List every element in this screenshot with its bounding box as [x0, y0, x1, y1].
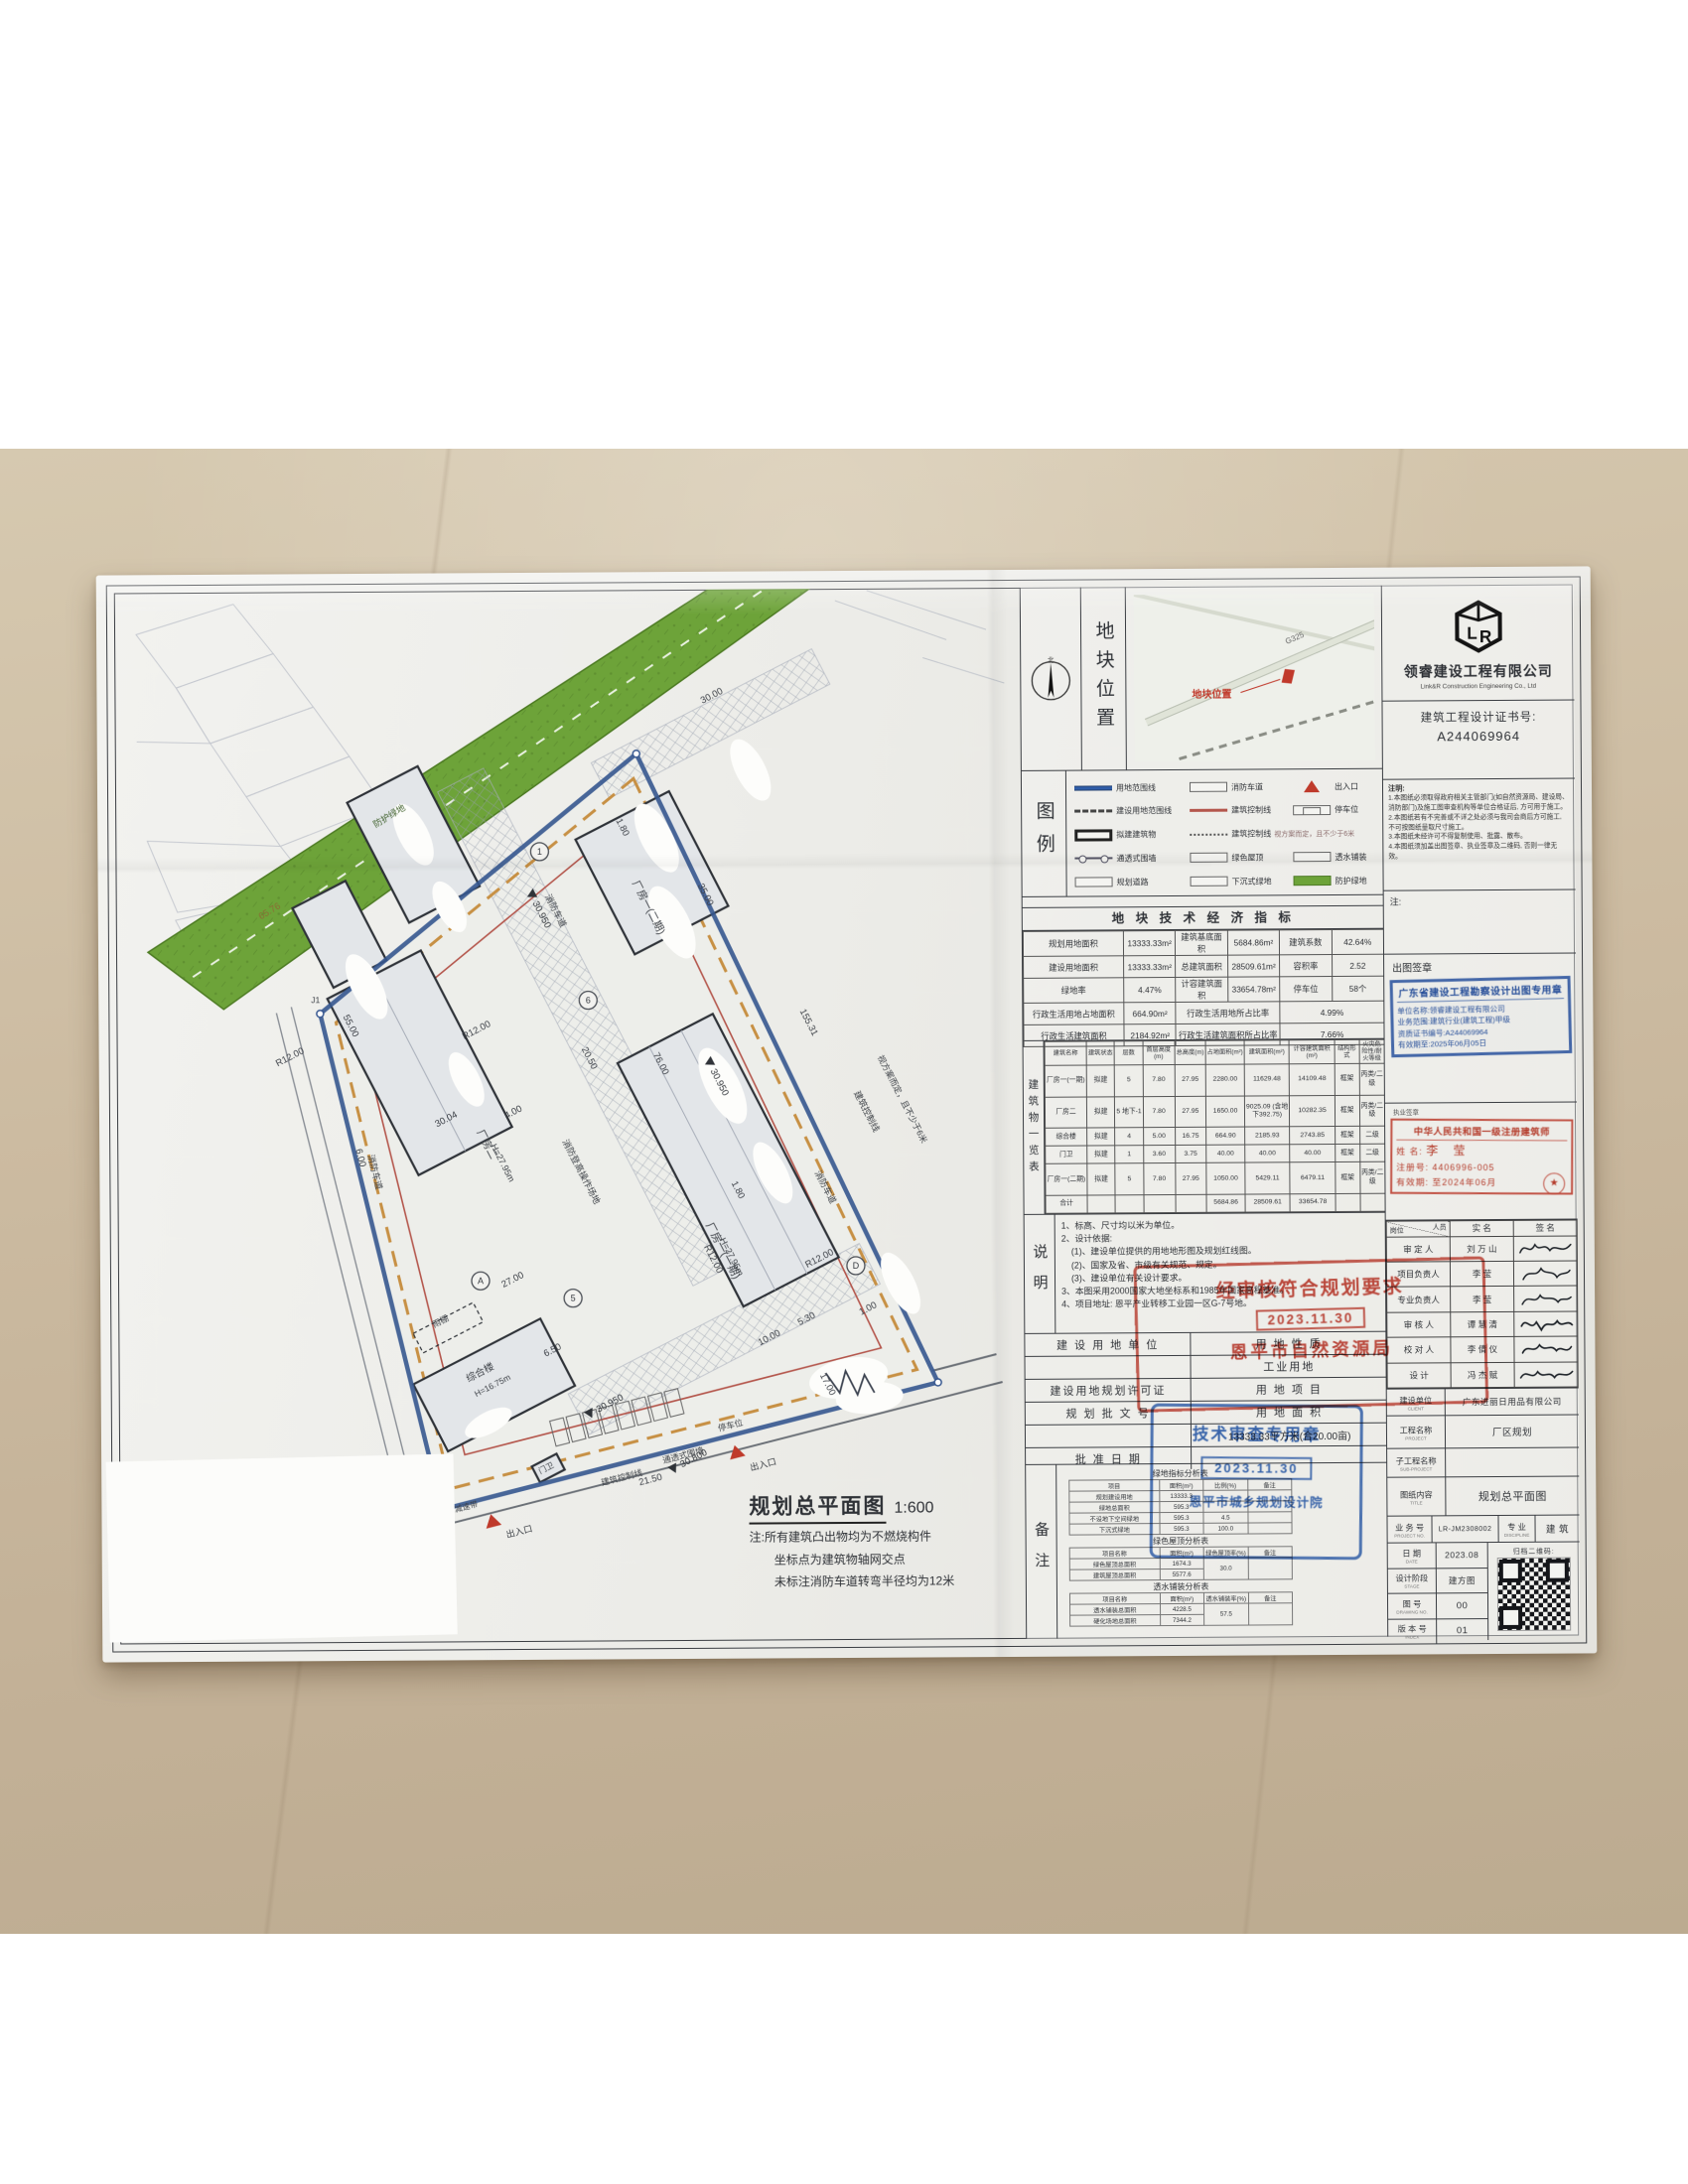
sub-project-value [1446, 1448, 1579, 1477]
table-cell: 7.80 [1143, 1065, 1175, 1097]
axis-bubble-label: 5 [571, 1294, 576, 1303]
divider [1382, 700, 1574, 702]
architect-stamp: 中华人民共和国一级注册建筑师 姓 名: 李 莹 注册号: 4406996-005… [1390, 1119, 1573, 1195]
table-row: 透水铺装总面积4228.557.5 [1070, 1603, 1293, 1615]
legend-text: 绿色屋顶 [1231, 852, 1263, 863]
table-cell: 绿色屋顶总面积 [1069, 1559, 1160, 1570]
label-j1: J1 [311, 995, 320, 1005]
drawing-no-value: 00 [1437, 1593, 1487, 1618]
legend-text: 透水铺装 [1335, 852, 1366, 863]
axis-bubble-label: 1 [537, 847, 542, 857]
table-header-cell: 总高度(m) [1175, 1040, 1206, 1065]
table-cell: 42.64% [1332, 929, 1384, 954]
table-cell [1248, 1603, 1293, 1625]
table-cell: 拟建 [1087, 1163, 1116, 1195]
legend-swatch-greenroof [1190, 853, 1227, 863]
architect-name: 李 莹 [1426, 1144, 1471, 1158]
legend-text: 规划道路 [1117, 877, 1149, 887]
legend-swatch-sunken-green [1191, 877, 1228, 887]
instruction-item: 2.本图纸若有不完善或不详之处必须与我司会商后方可施工, 不可按图纸量取尺寸施工… [1388, 812, 1570, 833]
table-cell: 拟建 [1086, 1097, 1115, 1129]
sheet-title-label: 图纸内容 [1400, 1488, 1433, 1500]
table-cell: 16.75 [1175, 1127, 1206, 1145]
table-cell: 门卫 [1046, 1146, 1087, 1163]
table-cell: 28509.61 [1245, 1194, 1291, 1212]
signature-scribble [1514, 1311, 1578, 1337]
table-header-cell: 备注 [1248, 1592, 1293, 1603]
issue-seal-label: 出图签章 [1384, 954, 1576, 977]
qr-code [1498, 1559, 1570, 1630]
table-cell: 4228.5 [1160, 1603, 1204, 1614]
legend-swatch-control-dotted [1190, 833, 1227, 835]
table-cell: 建设用地面积 [1024, 956, 1124, 979]
stage-label-en: STAGE [1404, 1584, 1419, 1589]
instruction-item: 4.本图纸须加盖出图签章、执业签章及二维码, 否则一律无效。 [1388, 842, 1570, 863]
table-cell: 厂房二 [1045, 1097, 1086, 1129]
legend-text: 拟建建筑物 [1116, 829, 1156, 840]
table-cell [1336, 1193, 1360, 1211]
table-cell: 二级 [1359, 1144, 1384, 1161]
legend-text: 建筑控制线 [1231, 828, 1271, 839]
plan-title: 规划总平面图 [749, 1490, 886, 1525]
table-row: 规划用地面积13333.33m²建筑基底面积5684.86m²建筑系数42.64… [1023, 929, 1383, 956]
table-cell: 丙类/二级 [1359, 1064, 1384, 1096]
stamp-date: 2023.11.30 [1200, 1456, 1313, 1480]
table-row: 厂房一(一期)拟建57.8027.952280.0011629.4814109.… [1045, 1064, 1384, 1097]
drawing-no-label-en: DRAWING NO. [1396, 1609, 1428, 1614]
legend-text: 出入口 [1335, 780, 1358, 791]
buildings-section: 建筑物一览表 建筑名称建筑状态层数首层高度(m)总高度(m)占地面积(m²)建筑… [1024, 1039, 1386, 1215]
stamp-line: 注册号: [1396, 1162, 1429, 1172]
table-header-cell: 建筑面积(m²) [1244, 1040, 1290, 1065]
company-logo-icon: L R [1451, 599, 1504, 654]
table-cell: 行政生活用地所占比率 [1176, 1002, 1280, 1024]
architect-seal-label: 执业签章 [1385, 1103, 1577, 1118]
signature-scribble [1513, 1261, 1577, 1287]
legend-swatch-fence [1074, 858, 1112, 860]
legend-text: 停车位 [1335, 804, 1358, 815]
project-label-en: PROJECT [1405, 1435, 1426, 1440]
table-cell: 7.80 [1143, 1096, 1175, 1128]
table-cell: 2743.85 [1290, 1127, 1336, 1145]
legend-swatch-firelane [1190, 782, 1227, 792]
architect-valid: 至2024年06月 [1432, 1177, 1496, 1187]
table-header-cell: 计容建筑面积(m²) [1289, 1039, 1335, 1064]
table-cell: 框架 [1335, 1064, 1359, 1096]
label-control-line: 建筑控制线 [852, 1089, 882, 1134]
table-header-cell: 火灾危险性/耐火等级 [1359, 1039, 1384, 1064]
map-highway-label: G325 [1284, 630, 1306, 646]
table-cell: 5 [1115, 1065, 1144, 1097]
index-label: 版 本 号 [1398, 1623, 1427, 1635]
axis-bubble-label: 6 [586, 996, 591, 1006]
table-cell [1115, 1194, 1143, 1212]
discipline-value: 建 筑 [1535, 1515, 1579, 1541]
date-value: 2023.08 [1437, 1543, 1487, 1568]
table-cell: 框架 [1335, 1145, 1359, 1162]
table-row: 绿地率4.47%计容建筑面积33654.78m²停车位58个 [1024, 976, 1384, 1003]
table-cell: 33654.78 [1290, 1193, 1336, 1211]
notes-side-label: 说明 [1025, 1215, 1056, 1333]
table-cell: 27.95 [1175, 1065, 1206, 1097]
project-value: 厂区规划 [1446, 1416, 1579, 1448]
sheet-title-value: 规划总平面图 [1446, 1477, 1579, 1516]
signature-scribble [1514, 1286, 1578, 1311]
sig-header: 签 名 [1513, 1220, 1577, 1236]
legend-text: 建筑控制线 [1231, 805, 1271, 816]
table-header-cell: 透水铺装率(%) [1204, 1592, 1249, 1603]
architect-reg-no: 4406996-005 [1432, 1162, 1494, 1172]
photo-of-site-plan: 1 6 5 A D 30.950 30.950 30.950 30.800 厂房… [0, 0, 1688, 2184]
table-cell: 10282.35 [1290, 1095, 1336, 1127]
review-stamp-red: 经审核符合规划要求 2023.11.30 恩平市自然资源局 [1133, 1256, 1488, 1413]
architect-seal-block: 执业签章 中华人民共和国一级注册建筑师 姓 名: 李 莹 注册号: 440699… [1385, 1103, 1578, 1221]
tech-review-stamp-blue: 技术审查专用章 2023.11.30 恩平市城乡规划设计院 [1150, 1404, 1363, 1561]
drawing-no-label: 图 号 [1403, 1597, 1422, 1609]
table-cell: 13333.33m² [1123, 930, 1176, 955]
table-cell: 58个 [1332, 976, 1384, 1001]
table-cell: 总建筑面积 [1176, 955, 1228, 977]
company-block: L R 领睿建设工程有限公司 Link&R Construction Engin… [1382, 585, 1575, 780]
table-cell: 5429.11 [1245, 1162, 1291, 1194]
table-row: 厂房一(二期)拟建57.8027.951050.005429.116479.11… [1046, 1162, 1385, 1195]
table-cell: 建筑系数 [1280, 930, 1333, 955]
table-cell: 5 地下-1 [1115, 1096, 1144, 1128]
legend-label: 图例 [1022, 771, 1067, 896]
legend-text: 用地范围线 [1116, 782, 1156, 793]
table-cell: 1050.00 [1206, 1162, 1245, 1194]
company-name-en: Link&R Construction Engineering Co., Ltd [1382, 683, 1574, 691]
table-cell: 拟建 [1087, 1146, 1115, 1163]
table-cell: 厂房一(二期) [1046, 1163, 1087, 1195]
instructions-block: 注明: 1.本图纸必须取得政府相关主管部门(如自然资源局、建设局、消防部门)及施… [1383, 779, 1576, 891]
map-plot-label: 地块位置 [1192, 686, 1231, 701]
table-row: 合计5684.8628509.6133654.78 [1046, 1193, 1385, 1213]
table-header-cell: 结构形式 [1335, 1039, 1359, 1064]
location-mini-map: G325 地块位置 [1134, 594, 1375, 761]
table-cell: 664.90m² [1124, 1002, 1177, 1024]
table-cell: 40.00 [1245, 1145, 1291, 1162]
table-cell: 4 [1115, 1128, 1143, 1146]
index-label-en: INDEX [1405, 1635, 1419, 1640]
table-cell: 33654.78m² [1227, 977, 1280, 1002]
legend-text: 通透式围墙 [1116, 853, 1156, 864]
table-cell: 行政生活用地占地面积 [1024, 1003, 1124, 1025]
indicators-table: 规划用地面积13333.33m²建筑基底面积5684.86m²建筑系数42.64… [1023, 929, 1385, 1047]
table-cell: 13333.33m² [1124, 955, 1177, 977]
white-redaction-patch [106, 1453, 458, 1642]
discipline-label: 专 业 [1507, 1520, 1526, 1532]
table-cell: 4.99% [1280, 1001, 1384, 1024]
table-cell: 28509.61m² [1227, 955, 1280, 977]
table-cell: 透水铺装总面积 [1070, 1604, 1161, 1616]
buildings-table: 建筑名称建筑状态层数首层高度(m)总高度(m)占地面积(m²)建筑面积(m²)计… [1045, 1039, 1386, 1214]
legend-swatch-constr-line [1074, 810, 1112, 813]
svg-text:R: R [1478, 627, 1490, 646]
table-cell: 11629.48 [1244, 1064, 1290, 1096]
qr-label: 归档二维码: [1488, 1545, 1580, 1556]
signature-scribble [1513, 1236, 1577, 1262]
permeable-analysis-table: 项目名称面积(m²)透水铺装率(%)备注透水铺装总面积4228.557.5硬化场… [1069, 1591, 1293, 1626]
table-cell: 9025.09 (含地下392.75) [1244, 1096, 1290, 1128]
table-cell: 1 [1115, 1146, 1143, 1163]
title-panel: L R 领睿建设工程有限公司 Link&R Construction Engin… [1381, 585, 1580, 1637]
table-cell: 5577.6 [1160, 1569, 1204, 1579]
issue-seal-stamp: 广东省建设工程勘察设计出图专用章 单位名称:领睿建设工程有限公司 业务范围:建筑… [1389, 976, 1572, 1057]
project-label: 工程名称 [1400, 1424, 1433, 1435]
table-cell: 规划建设用地 [1069, 1491, 1160, 1503]
table-cell [1087, 1195, 1115, 1213]
legend-swatch-permeable [1293, 852, 1331, 862]
plan-note: 注:所有建筑凸出物均为不燃烧构件 [750, 1527, 1028, 1547]
table-cell: 建筑屋顶总面积 [1069, 1570, 1160, 1581]
table-cell: 2185.93 [1244, 1127, 1290, 1145]
svg-text:L: L [1467, 624, 1477, 643]
table-header-cell: 项目名称 [1069, 1593, 1160, 1605]
table-row: 厂房二拟建5 地下-17.8027.951650.009025.09 (含地下3… [1045, 1095, 1384, 1128]
table-cell: 7.80 [1144, 1163, 1176, 1195]
company-name: 领睿建设工程有限公司 [1382, 661, 1574, 682]
table-row: 门卫拟建13.603.7540.0040.0040.00框架二级 [1046, 1144, 1385, 1163]
table-cell: 30.0 [1203, 1558, 1248, 1579]
sub-project-label: 子工程名称 [1396, 1454, 1437, 1466]
table-cell: 绿地总面积 [1069, 1502, 1160, 1514]
stamp-text: 经审核符合规划要求 [1137, 1269, 1483, 1304]
table-cell: 27.95 [1175, 1096, 1206, 1128]
plan-scale: 1:600 [894, 1499, 933, 1516]
project-no-value: LR-JM2308002 [1432, 1516, 1498, 1542]
paper-sheet: 1 6 5 A D 30.950 30.950 30.950 30.800 厂房… [96, 566, 1598, 1662]
drawing-title-block: 建设单位CLIENT 广东进丽日用品有限公司 工程名称PROJECT 厂区规划 … [1387, 1389, 1581, 1637]
label-entrance: 出入口 [504, 1523, 533, 1540]
buildings-side-label: 建筑物一览表 [1024, 1041, 1046, 1214]
note-box: 注: [1384, 890, 1576, 955]
table-cell [1360, 1193, 1385, 1211]
cert-label: 建筑工程设计证书号: [1383, 709, 1575, 726]
table-cell: 4.47% [1124, 977, 1177, 1002]
stamp-date: 2023.11.30 [1255, 1307, 1365, 1331]
project-no-label-en: PROJECT NO. [1394, 1533, 1425, 1538]
table-header-cell: 建筑状态 [1086, 1041, 1115, 1066]
stamp-org: 恩平市城乡规划设计院 [1153, 1491, 1359, 1512]
signature-scribble [1514, 1336, 1578, 1362]
table-cell: 1650.00 [1206, 1096, 1245, 1128]
table-header-cell: 首层高度(m) [1143, 1040, 1175, 1065]
table-header-cell: 项目名称 [1069, 1548, 1160, 1560]
table-cell: 57.5 [1204, 1603, 1249, 1625]
round-seal-icon: ★ [1543, 1172, 1565, 1194]
table-cell: 5.00 [1143, 1128, 1175, 1146]
table-cell: 厂房一(一期) [1045, 1065, 1086, 1097]
table-cell: 5 [1115, 1163, 1144, 1195]
table-cell: 计容建筑面积 [1176, 977, 1228, 1002]
table-row: 绿色屋顶总面积1674.330.0 [1069, 1558, 1292, 1570]
table-cell: 硬化场地总面积 [1070, 1615, 1161, 1627]
instruction-item: 1.本图纸必须取得政府相关主管部门(如自然资源局、建设局、消防部门)及施工图审查… [1388, 793, 1570, 814]
legend-swatch-boundary [1074, 785, 1112, 790]
table-cell: 5684.86 [1206, 1194, 1245, 1212]
stamp-line: 姓 名: [1396, 1147, 1423, 1157]
legend-swatch-entrance [1304, 780, 1320, 792]
diagonal-header: 岗位 人员 [1386, 1221, 1450, 1237]
table-cell: 2280.00 [1205, 1064, 1244, 1096]
table-cell: 绿地率 [1024, 978, 1124, 1004]
legend-swatch-control-line [1190, 809, 1227, 812]
plan-note: 未标注消防车道转弯半径均为12米 [750, 1571, 1028, 1591]
table-header-cell: 项目 [1069, 1480, 1160, 1492]
table-row: 综合楼拟建45.0016.75664.902185.932743.85框架二级 [1046, 1126, 1385, 1146]
index-value: 01 [1437, 1619, 1487, 1644]
table-cell [1144, 1194, 1176, 1212]
table-cell: 二级 [1359, 1126, 1384, 1144]
pos-label: 岗位 [1390, 1225, 1404, 1235]
legend-swatch-building [1074, 829, 1112, 841]
plot-location-label: 地块位置 [1081, 587, 1127, 769]
legend-text: 防护绿地 [1336, 875, 1367, 886]
table-cell: 规划用地面积 [1023, 931, 1123, 957]
table-cell: 14109.48 [1290, 1064, 1336, 1096]
table-cell: 7344.2 [1160, 1614, 1204, 1625]
signature-scribble [1514, 1362, 1578, 1388]
table-header-cell: 占地面积(m²) [1205, 1040, 1244, 1065]
legend-swatch-road [1075, 877, 1113, 887]
issue-seal-block: 出图签章 广东省建设工程勘察设计出图专用章 单位名称:领睿建设工程有限公司 业务… [1384, 954, 1577, 1104]
legend-text: 建设用地范围线 [1116, 805, 1172, 816]
map-plot-marker [1282, 669, 1295, 684]
map-railway [1179, 691, 1375, 760]
table-cell [1176, 1194, 1207, 1212]
map-road [1134, 594, 1375, 663]
client-label-en: CLIENT [1408, 1406, 1424, 1411]
table-cell: 综合楼 [1046, 1128, 1087, 1146]
table-cell: 拟建 [1086, 1065, 1115, 1097]
sub-project-label-en: SUB-PROJECT [1400, 1466, 1432, 1471]
name-header: 实 名 [1450, 1220, 1513, 1236]
sheet-title-label-en: TITLE [1410, 1500, 1423, 1505]
table-cell: 5684.86m² [1227, 930, 1280, 955]
legend-swatch-buffer-green [1294, 876, 1332, 886]
economic-indicators-section: 地 块 技 术 经 济 指 标 规划用地面积13333.33m²建筑基底面积56… [1023, 905, 1385, 1041]
plan-note: 坐标点为建筑物轴网交点 [750, 1549, 1028, 1569]
table-cell: 6479.11 [1290, 1162, 1336, 1194]
table-header-cell: 建筑名称 [1045, 1041, 1086, 1066]
note-box-label: 注: [1390, 897, 1402, 907]
date-label: 日 期 [1402, 1547, 1421, 1559]
table-cell: 3.75 [1175, 1146, 1206, 1163]
table-row: 行政生活用地占地面积664.90m²行政生活用地所占比率4.99% [1024, 1001, 1384, 1024]
table-header-cell: 层数 [1114, 1041, 1143, 1066]
table-cell: 40.00 [1206, 1145, 1245, 1162]
discipline-label-en: DISCIPLINE [1504, 1532, 1530, 1537]
label-entrance: 出入口 [749, 1455, 777, 1472]
table-cell: 664.90 [1206, 1127, 1245, 1145]
table-cell: 框架 [1335, 1126, 1359, 1144]
legend-section: 图例 用地范围线 消防车道 出入口 建设用地范围线 建筑控制线 停车位 拟建建筑… [1022, 769, 1384, 897]
plan-title-block: 规划总平面图1:600 注:所有建筑凸出物均为不燃烧构件 坐标点为建筑物轴网交点… [749, 1489, 1028, 1591]
table-cell: 3.60 [1143, 1146, 1175, 1163]
stamp-org: 恩平市自然资源局 [1139, 1332, 1485, 1366]
table-cell: 停车位 [1280, 977, 1333, 1002]
label-per-plan: 视方案而定，且不少于6米 [876, 1053, 929, 1145]
table-cell: 1674.3 [1160, 1558, 1204, 1569]
table-header-cell: 面积(m²) [1160, 1592, 1204, 1603]
table-cell: 建筑基底面积 [1176, 930, 1228, 955]
stage-label: 设计阶段 [1395, 1572, 1428, 1584]
plot-location-section: 北 地块位置 G325 地块位置 [1021, 586, 1383, 771]
legend-text: 下沉式绿地 [1232, 876, 1272, 887]
map-road-g325 [1145, 601, 1375, 726]
table-cell: 下沉式绿地 [1069, 1524, 1160, 1536]
per-label: 人员 [1433, 1222, 1447, 1232]
axis-bubble-label: D [853, 1261, 860, 1271]
table-cell: 合计 [1046, 1195, 1087, 1213]
table-cell: 框架 [1336, 1162, 1360, 1194]
north-label: 北 [1048, 656, 1055, 664]
north-arrow: 北 [1021, 588, 1082, 770]
stamp-line: 有效期: [1396, 1177, 1429, 1187]
table-cell: 丙类/二级 [1359, 1095, 1384, 1127]
stamp-title: 广东省建设工程勘察设计出图专用章 [1396, 982, 1563, 1003]
stamp-text: 技术审查专用章 [1154, 1421, 1360, 1446]
legend-note: 视方案而定，且不少于6米 [1274, 828, 1354, 838]
table-cell [1248, 1558, 1293, 1579]
table-cell: 2.52 [1332, 954, 1384, 976]
indicators-title: 地 块 技 术 经 济 指 标 [1023, 906, 1384, 931]
table-cell: 容积率 [1280, 955, 1333, 977]
table-cell: 不设地下空间绿地 [1069, 1513, 1160, 1525]
stamp-title: 中华人民共和国一级注册建筑师 [1396, 1123, 1567, 1142]
table-cell: 40.00 [1290, 1145, 1336, 1162]
stage-value: 建方图 [1437, 1569, 1487, 1593]
table-cell: 框架 [1335, 1095, 1359, 1127]
axis-bubble-label: A [478, 1276, 484, 1286]
date-label-en: DATE [1406, 1559, 1418, 1564]
project-no-label: 业 务 号 [1395, 1521, 1424, 1533]
table-cell: 拟建 [1087, 1128, 1115, 1146]
table-cell: 27.95 [1175, 1163, 1206, 1195]
table-cell: 丙类/二级 [1360, 1162, 1385, 1194]
legend-text: 消防车道 [1231, 781, 1263, 792]
legend-swatch-parking [1293, 805, 1331, 815]
remark-side-label: 备注 [1026, 1465, 1057, 1639]
svg-text:155.31: 155.31 [797, 1008, 820, 1038]
table-row: 建设用地面积13333.33m²总建筑面积28509.61m²容积率2.52 [1024, 954, 1384, 978]
cert-number: A244069964 [1383, 729, 1575, 745]
